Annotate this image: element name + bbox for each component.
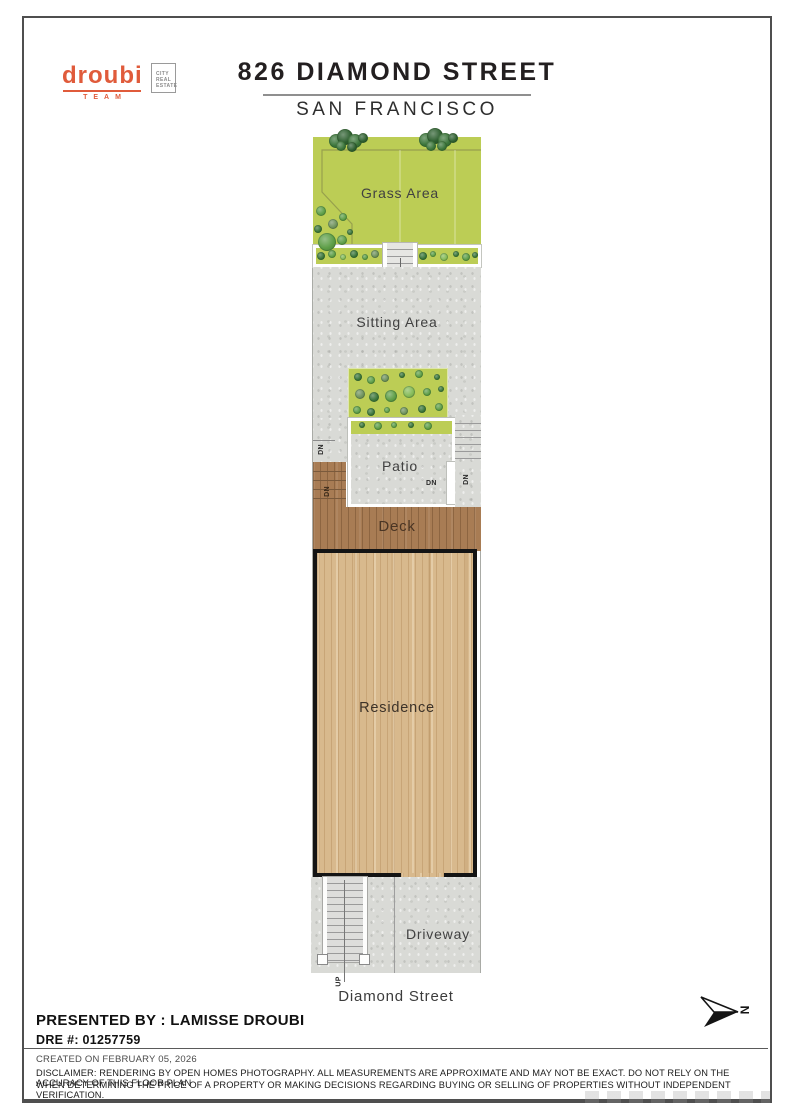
street-label: Diamond Street — [316, 988, 476, 1005]
shrub-icon — [403, 386, 415, 398]
deck-label: Deck — [327, 518, 467, 535]
north-label: N — [737, 1006, 751, 1015]
shrub-icon — [391, 422, 397, 428]
shrub-icon — [415, 370, 423, 378]
street-stair-up-label: UP — [336, 976, 343, 986]
deck-stair-dn-label: DN — [324, 486, 331, 497]
floor-plan-page: droubi TEAM CITY REAL ESTATE 826 DIAMOND… — [0, 0, 792, 1120]
shrub-icon — [384, 407, 390, 413]
shrub-icon — [328, 250, 336, 258]
grass-area-label: Grass Area — [330, 185, 470, 201]
shrub-icon — [448, 133, 458, 143]
shrub-icon — [438, 386, 444, 392]
shrub-icon — [453, 251, 459, 257]
sitting-area-label: Sitting Area — [327, 314, 467, 330]
shrub-icon — [418, 405, 426, 413]
shrub-icon — [328, 219, 338, 229]
shrub-icon — [385, 390, 397, 402]
shrub-icon — [419, 252, 427, 260]
shrub-icon — [400, 407, 408, 415]
right-stair-dn-label: DN — [463, 474, 470, 485]
driveway-divider-line — [394, 877, 395, 973]
shrub-icon — [358, 133, 368, 143]
shrub-icon — [336, 141, 346, 151]
shrub-icon — [355, 389, 365, 399]
side-landing-dn-label: DN — [318, 444, 325, 455]
patio-dn-label: DN — [426, 480, 437, 487]
shrub-icon — [337, 235, 347, 245]
shrub-icon — [423, 388, 431, 396]
shrub-icon — [472, 252, 478, 258]
shrub-icon — [399, 372, 405, 378]
shrub-icon — [350, 250, 358, 258]
shrub-icon — [316, 206, 326, 216]
street-stair-direction-line — [344, 880, 345, 982]
dre-number-text: DRE #: 01257759 — [36, 1033, 141, 1047]
shrub-icon — [367, 408, 375, 416]
shrub-icon — [339, 213, 347, 221]
shrub-icon — [437, 141, 447, 151]
shrub-icon — [434, 374, 440, 380]
shrub-icon — [408, 422, 414, 428]
shrub-icon — [362, 254, 368, 260]
street-stair — [323, 877, 367, 962]
stair-newel-right — [359, 954, 370, 965]
shrub-icon — [347, 229, 353, 235]
stair-newel-left — [317, 954, 328, 965]
driveway-label: Driveway — [395, 926, 481, 942]
created-date-text: CREATED ON FEBRUARY 05, 2026 — [36, 1054, 197, 1065]
shrub-icon — [354, 373, 362, 381]
residence-label: Residence — [327, 700, 467, 716]
shrub-icon — [340, 254, 346, 260]
shrub-icon — [353, 406, 361, 414]
shrub-icon — [462, 253, 470, 261]
patio-planting-strip — [351, 421, 452, 434]
shrub-icon — [359, 422, 365, 428]
shrub-icon — [367, 376, 375, 384]
shrub-icon — [317, 252, 325, 260]
right-stair-treads — [455, 417, 481, 463]
shrub-icon — [314, 225, 322, 233]
shrub-icon — [371, 250, 379, 258]
shrub-icon — [374, 422, 382, 430]
presented-by-text: PRESENTED BY : LAMISSE DROUBI — [36, 1012, 304, 1029]
shrub-icon — [435, 403, 443, 411]
shrub-icon — [426, 141, 436, 151]
shrub-icon — [440, 253, 448, 261]
shrub-icon — [381, 374, 389, 382]
shrub-icon — [424, 422, 432, 430]
shrub-icon — [347, 142, 357, 152]
watermark-artifact — [585, 1091, 770, 1103]
footer-divider — [24, 1048, 768, 1049]
site-plan: Grass Area UP Sitting Area DN DN Patio D… — [0, 0, 792, 1120]
shrub-icon — [369, 392, 379, 402]
shrub-icon — [318, 233, 336, 251]
side-landing-step-line — [313, 440, 335, 441]
shrub-icon — [430, 251, 436, 257]
